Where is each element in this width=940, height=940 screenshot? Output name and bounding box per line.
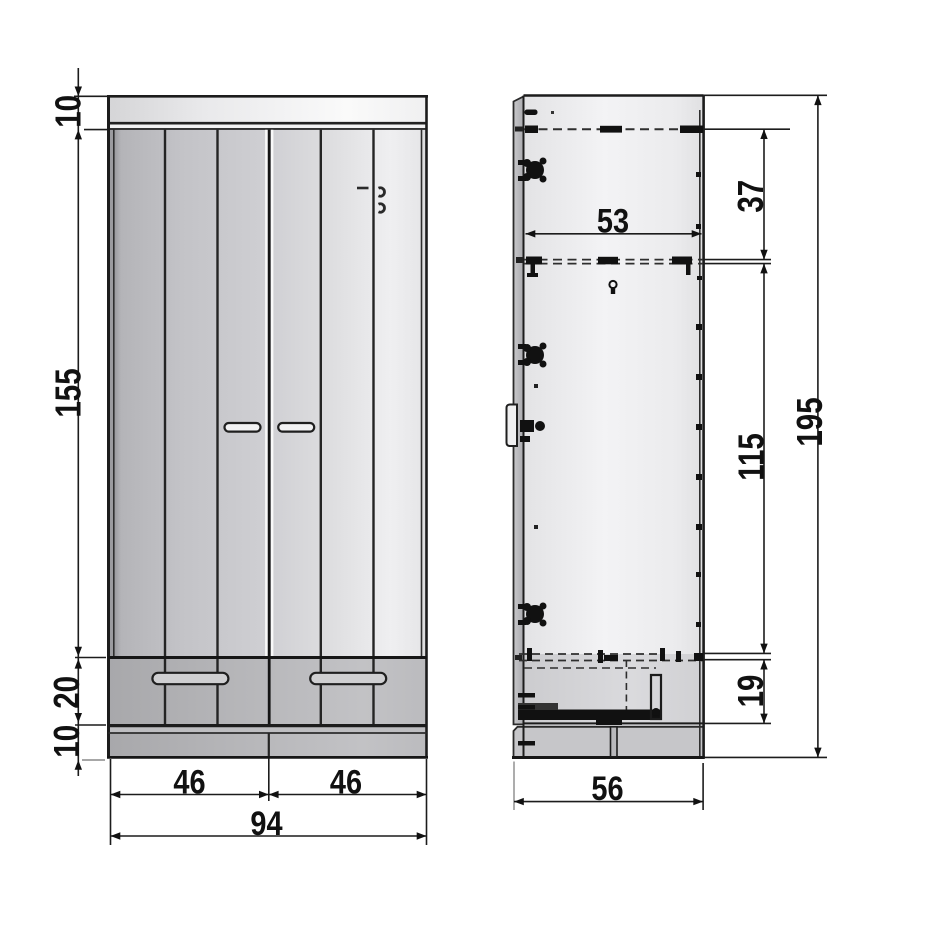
svg-text:94: 94: [250, 804, 283, 843]
svg-text:10: 10: [46, 725, 86, 758]
svg-text:53: 53: [597, 201, 629, 240]
svg-text:195: 195: [789, 397, 829, 446]
svg-text:20: 20: [46, 676, 86, 709]
svg-text:10: 10: [47, 95, 87, 128]
svg-text:46: 46: [173, 762, 205, 801]
svg-text:19: 19: [730, 675, 770, 708]
svg-text:56: 56: [591, 769, 623, 808]
svg-text:37: 37: [730, 180, 770, 213]
svg-text:46: 46: [330, 762, 362, 801]
svg-text:155: 155: [48, 368, 88, 417]
svg-text:115: 115: [731, 433, 771, 481]
